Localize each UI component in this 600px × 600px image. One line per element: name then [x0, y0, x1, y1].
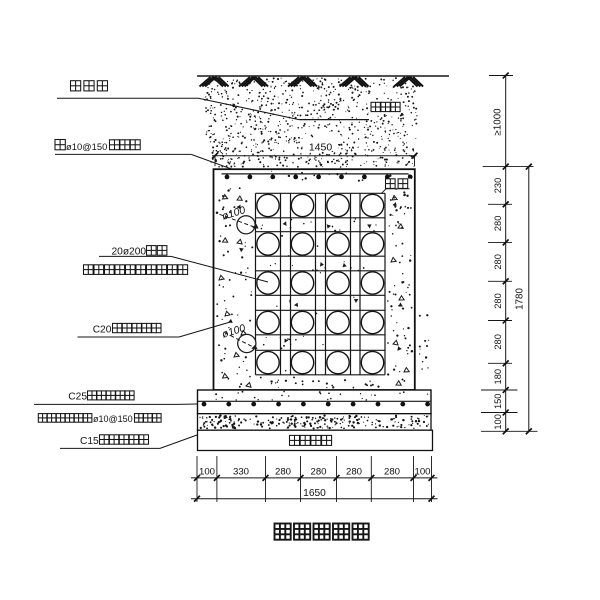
- svg-text:280: 280: [275, 467, 291, 478]
- svg-text:100: 100: [493, 414, 503, 430]
- svg-text:280: 280: [493, 334, 503, 350]
- svg-text:150: 150: [493, 394, 503, 410]
- svg-text:280: 280: [493, 254, 503, 270]
- svg-text:≥1000: ≥1000: [493, 108, 504, 136]
- svg-text:ø10@150: ø10@150: [66, 141, 107, 152]
- svg-text:1650: 1650: [303, 488, 326, 499]
- svg-text:20ø200: 20ø200: [112, 246, 147, 257]
- svg-text:280: 280: [493, 293, 503, 309]
- svg-text:330: 330: [233, 467, 249, 478]
- svg-text:280: 280: [310, 467, 326, 478]
- svg-text:230: 230: [493, 178, 503, 194]
- svg-text:C20: C20: [93, 324, 112, 335]
- svg-text:280: 280: [384, 467, 400, 478]
- svg-text:180: 180: [493, 369, 503, 385]
- svg-text:C25: C25: [68, 392, 87, 403]
- svg-text:C15: C15: [80, 436, 99, 447]
- svg-text:280: 280: [493, 216, 503, 232]
- svg-text:1780: 1780: [514, 288, 525, 310]
- svg-text:100: 100: [199, 467, 215, 478]
- svg-text:280: 280: [346, 467, 362, 478]
- svg-text:ø10@150: ø10@150: [93, 414, 133, 424]
- svg-text:1450: 1450: [309, 142, 333, 154]
- svg-text:100: 100: [414, 467, 430, 478]
